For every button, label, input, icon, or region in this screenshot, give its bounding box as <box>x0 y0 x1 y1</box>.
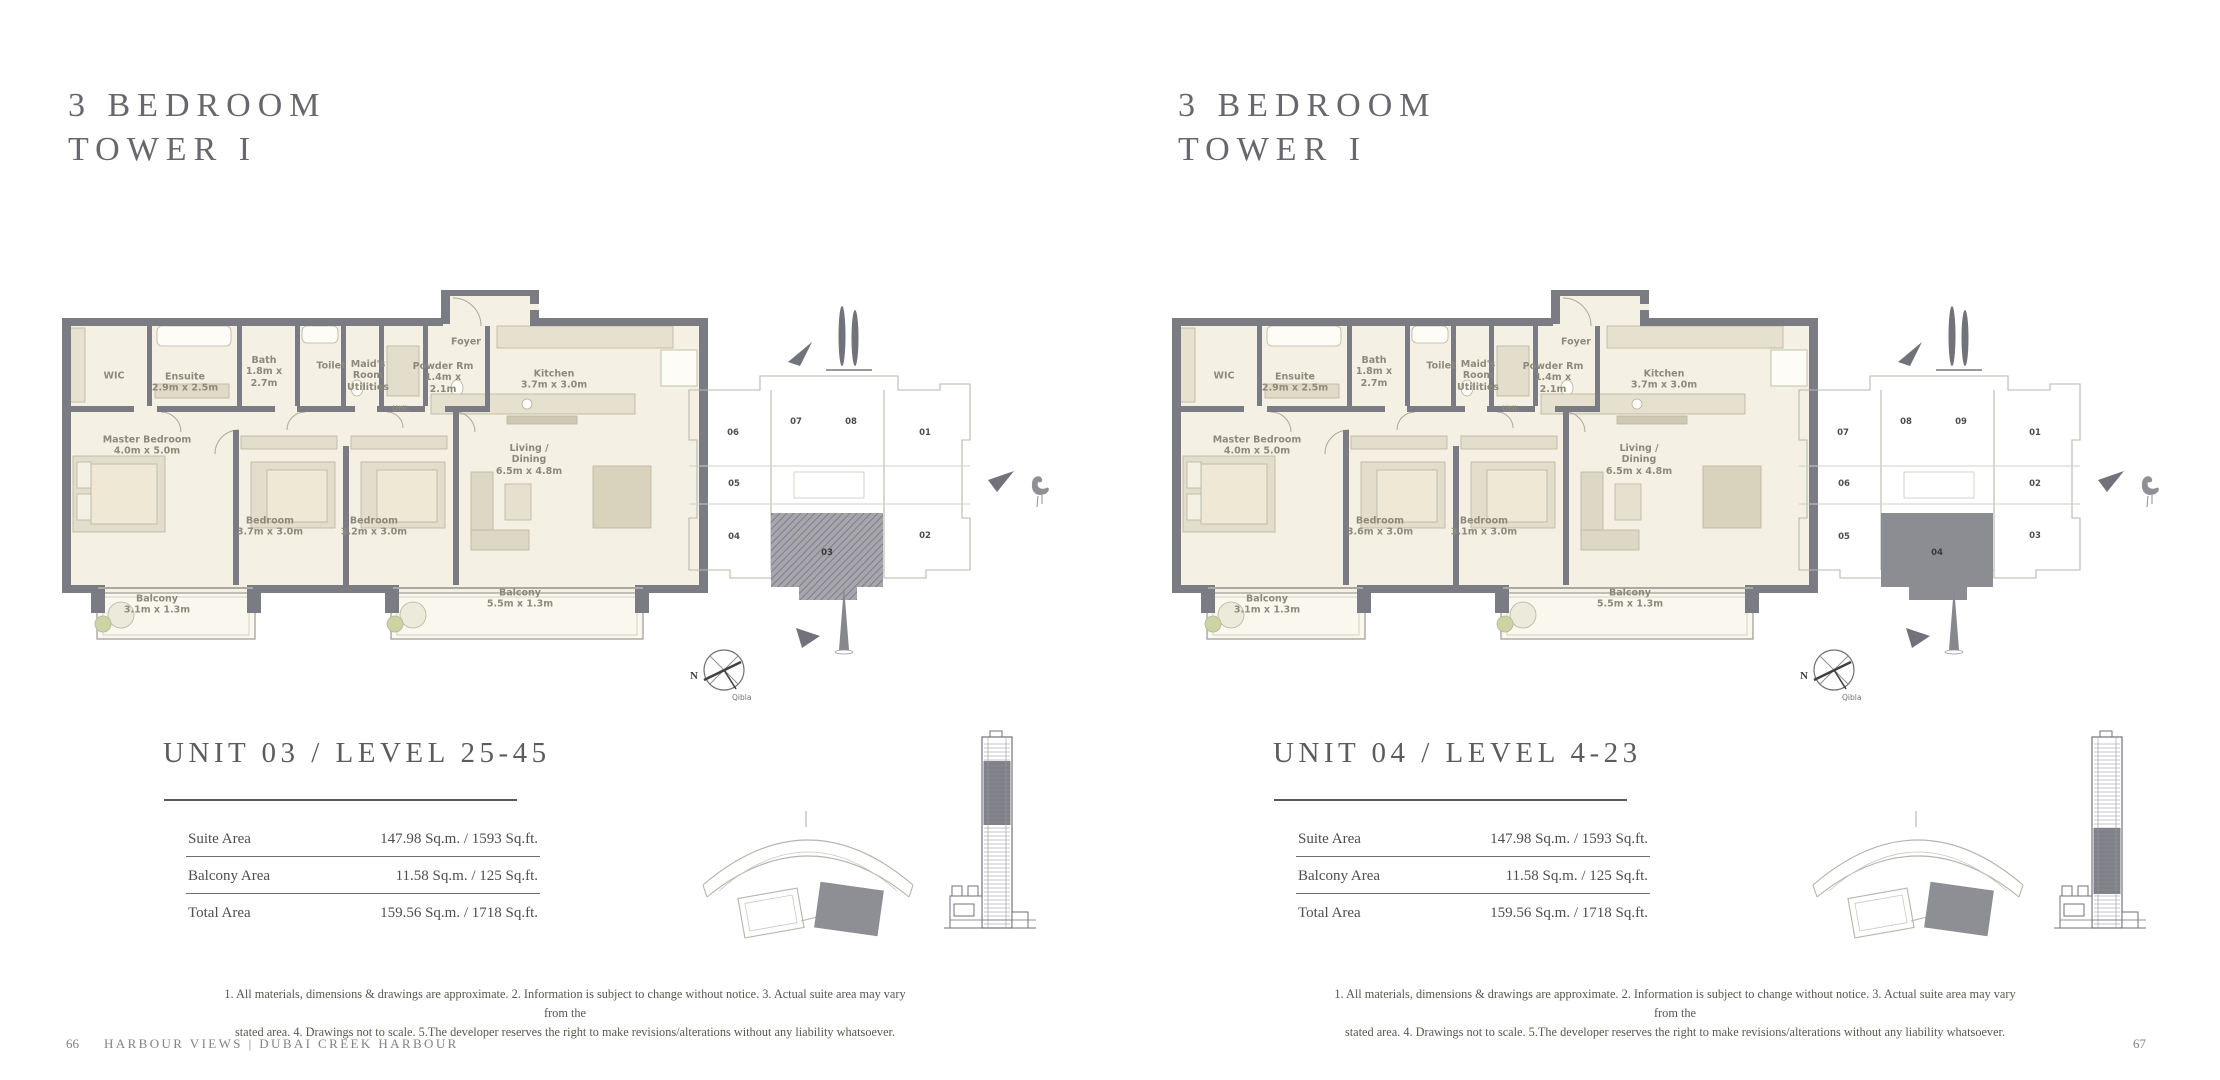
area-value: 147.98 Sq.m. / 1593 Sq.ft. <box>380 831 538 848</box>
tower1-footprint-highlighted <box>814 882 884 936</box>
area-table-row: Total Area159.56 Sq.m. / 1718 Sq.ft. <box>1296 894 1650 931</box>
site-plan <box>1803 793 2035 945</box>
key-plan-drawing: 06070801050402 03 N Qibla <box>676 280 1100 714</box>
room-label: WIC <box>104 370 125 381</box>
area-label: Suite Area <box>1298 831 1361 848</box>
page-title-line1: 3 BEDROOM <box>68 84 327 128</box>
compass-icon: N Qibla <box>1800 650 1861 702</box>
arrow-ne-icon <box>1898 342 1922 366</box>
page-footer: 66 HARBOUR VIEWS | DUBAI CREEK HARBOUR <box>0 1036 1110 1060</box>
room-label: Ensuite2.9m x 2.5m <box>1262 372 1328 395</box>
room-labels: WICEnsuite2.9m x 2.5mBath1.8m x2.7mToile… <box>57 288 713 646</box>
unit-heading: UNIT 03 / LEVEL 25-45 <box>163 737 551 770</box>
room-label: Living /Dining6.5m x 4.8m <box>496 443 562 477</box>
tower1-footprint-highlighted <box>1924 882 1994 936</box>
room-label: Balcony3.1m x 1.3m <box>1234 594 1300 617</box>
area-label: Balcony Area <box>1298 868 1380 885</box>
room-label: Master Bedroom4.0m x 5.0m <box>103 435 192 458</box>
page-title: 3 BEDROOM TOWER I <box>1178 84 1437 172</box>
brochure-spread: { "pages": [ { "title_line1": "3 BEDROOM… <box>0 0 2220 1080</box>
key-plan-unit-number: 06 <box>1838 479 1850 489</box>
heading-rule <box>164 799 517 801</box>
page-title-line1: 3 BEDROOM <box>1178 84 1437 128</box>
room-label: Foyer <box>451 336 481 347</box>
room-label: Toilet <box>1426 360 1455 371</box>
crescent-building-outline <box>703 811 913 897</box>
floor-plan: WICEnsuite2.9m x 2.5mBath1.8m x2.7mToile… <box>1167 288 1823 646</box>
landmark-towers-icon <box>826 306 872 370</box>
room-label: Kitchen3.7m x 3.0m <box>521 369 587 392</box>
key-plan-drawing: 0708090106020503 04 N Qibla <box>1786 280 2210 714</box>
brochure-page: 3 BEDROOM TOWER I <box>0 0 1110 1080</box>
room-label: Util. <box>1502 405 1520 414</box>
arrow-se-icon <box>796 628 820 648</box>
disclaimer: 1. All materials, dimensions & drawings … <box>1322 985 2028 1042</box>
key-plan-unit-number: 07 <box>1837 428 1849 438</box>
room-label: WIC <box>1214 370 1235 381</box>
key-plan-unit-number: 05 <box>728 479 740 489</box>
key-plan-highlighted-unit-number: 03 <box>821 548 833 558</box>
crescent-building-outline <box>1813 811 2023 897</box>
arrow-east-icon <box>2098 471 2124 492</box>
room-label: Maid'sRoomUtilities <box>1457 359 1499 393</box>
tower-elevation <box>2054 728 2148 948</box>
key-plan-unit-number: 06 <box>727 428 739 438</box>
area-value: 159.56 Sq.m. / 1718 Sq.ft. <box>380 905 538 922</box>
site-plan <box>693 793 925 945</box>
page-number: 67 <box>2133 1036 2146 1052</box>
room-labels: WICEnsuite2.9m x 2.5mBath1.8m x2.7mToile… <box>1167 288 1823 646</box>
key-plan-unit-number: 04 <box>728 532 740 542</box>
key-plan-unit-number: 07 <box>790 417 802 427</box>
key-plan-unit-number: 03 <box>2029 531 2041 541</box>
area-value: 147.98 Sq.m. / 1593 Sq.ft. <box>1490 831 1648 848</box>
compass-north-label: N <box>1800 670 1808 682</box>
compass-qibla-label: Qibla <box>1842 693 1861 702</box>
tower2-footprint <box>738 888 804 938</box>
room-label: Balcony3.1m x 1.3m <box>124 594 190 617</box>
area-table-row: Balcony Area11.58 Sq.m. / 125 Sq.ft. <box>186 857 540 894</box>
room-label: Util. <box>392 405 410 414</box>
room-label: Foyer <box>1561 336 1591 347</box>
area-table: Suite Area147.98 Sq.m. / 1593 Sq.ft.Balc… <box>1296 820 1650 931</box>
compass-qibla-label: Qibla <box>732 693 751 702</box>
heading-rule <box>1274 799 1627 801</box>
area-label: Total Area <box>188 905 251 922</box>
room-label: Bedroom3.7m x 3.0m <box>237 516 303 539</box>
flamingo-icon <box>1032 476 1049 507</box>
room-label: Powder Rm1.4m x2.1m <box>1523 361 1584 395</box>
room-label: Toilet <box>316 360 345 371</box>
key-plan: 0708090106020503 04 N Qibla <box>1786 280 2210 714</box>
area-table-row: Suite Area147.98 Sq.m. / 1593 Sq.ft. <box>186 820 540 857</box>
area-value: 11.58 Sq.m. / 125 Sq.ft. <box>1506 868 1648 885</box>
floor-plan: WICEnsuite2.9m x 2.5mBath1.8m x2.7mToile… <box>57 288 713 646</box>
brochure-page: 3 BEDROOM TOWER I <box>1110 0 2220 1080</box>
landmark-towers-icon <box>1936 306 1982 370</box>
key-plan-unit-number: 05 <box>1838 532 1850 542</box>
tower-elevation <box>944 728 1038 948</box>
tower2-footprint <box>1848 888 1914 938</box>
room-label: Balcony5.5m x 1.3m <box>487 588 553 611</box>
key-plan-unit-number: 01 <box>2029 428 2041 438</box>
key-plan-unit-number: 01 <box>919 428 931 438</box>
brochure-title: HARBOUR VIEWS | DUBAI CREEK HARBOUR <box>104 1036 459 1052</box>
arrow-ne-icon <box>788 342 812 366</box>
unit-heading: UNIT 04 / LEVEL 4-23 <box>1273 737 1642 770</box>
key-plan-unit-number: 09 <box>1955 417 1967 427</box>
page-title-line2: TOWER I <box>68 128 327 172</box>
compass-icon: N Qibla <box>690 650 751 702</box>
page-title: 3 BEDROOM TOWER I <box>68 84 327 172</box>
key-plan-unit-number: 02 <box>919 531 931 541</box>
area-value: 159.56 Sq.m. / 1718 Sq.ft. <box>1490 905 1648 922</box>
area-label: Suite Area <box>188 831 251 848</box>
arrow-east-icon <box>988 471 1014 492</box>
level-range-band <box>984 761 1011 825</box>
area-table: Suite Area147.98 Sq.m. / 1593 Sq.ft.Balc… <box>186 820 540 931</box>
key-plan-unit-number: 08 <box>845 417 857 427</box>
disclaimer: 1. All materials, dimensions & drawings … <box>212 985 918 1042</box>
room-label: Ensuite2.9m x 2.5m <box>152 372 218 395</box>
arrow-se-icon <box>1906 628 1930 648</box>
area-table-row: Balcony Area11.58 Sq.m. / 125 Sq.ft. <box>1296 857 1650 894</box>
area-table-row: Suite Area147.98 Sq.m. / 1593 Sq.ft. <box>1296 820 1650 857</box>
room-label: Balcony5.5m x 1.3m <box>1597 588 1663 611</box>
page-footer: 67 <box>1110 1036 2220 1060</box>
key-plan-highlighted-unit-number: 04 <box>1931 548 1943 558</box>
area-label: Total Area <box>1298 905 1361 922</box>
room-label: Powder Rm1.4m x2.1m <box>413 361 474 395</box>
area-label: Balcony Area <box>188 868 270 885</box>
compass-north-label: N <box>690 670 698 682</box>
disclaimer-line1: 1. All materials, dimensions & drawings … <box>212 985 918 1023</box>
key-plan: 06070801050402 03 N Qibla <box>676 280 1100 714</box>
room-label: Living /Dining6.5m x 4.8m <box>1606 443 1672 477</box>
room-label: Master Bedroom4.0m x 5.0m <box>1213 435 1302 458</box>
room-label: Bedroom3.1m x 3.0m <box>1451 516 1517 539</box>
page-title-line2: TOWER I <box>1178 128 1437 172</box>
room-label: Bath1.8m x2.7m <box>1356 355 1392 389</box>
disclaimer-line1: 1. All materials, dimensions & drawings … <box>1322 985 2028 1023</box>
page-number: 66 <box>66 1036 79 1052</box>
room-label: Bedroom3.6m x 3.0m <box>1347 516 1413 539</box>
room-label: Kitchen3.7m x 3.0m <box>1631 369 1697 392</box>
key-plan-unit-number: 08 <box>1900 417 1912 427</box>
area-table-row: Total Area159.56 Sq.m. / 1718 Sq.ft. <box>186 894 540 931</box>
flamingo-icon <box>2142 476 2159 507</box>
room-label: Maid'sRoomUtilities <box>347 359 389 393</box>
key-plan-unit-number: 02 <box>2029 479 2041 489</box>
room-label: Bath1.8m x2.7m <box>246 355 282 389</box>
area-value: 11.58 Sq.m. / 125 Sq.ft. <box>396 868 538 885</box>
room-label: Bedroom3.2m x 3.0m <box>341 516 407 539</box>
